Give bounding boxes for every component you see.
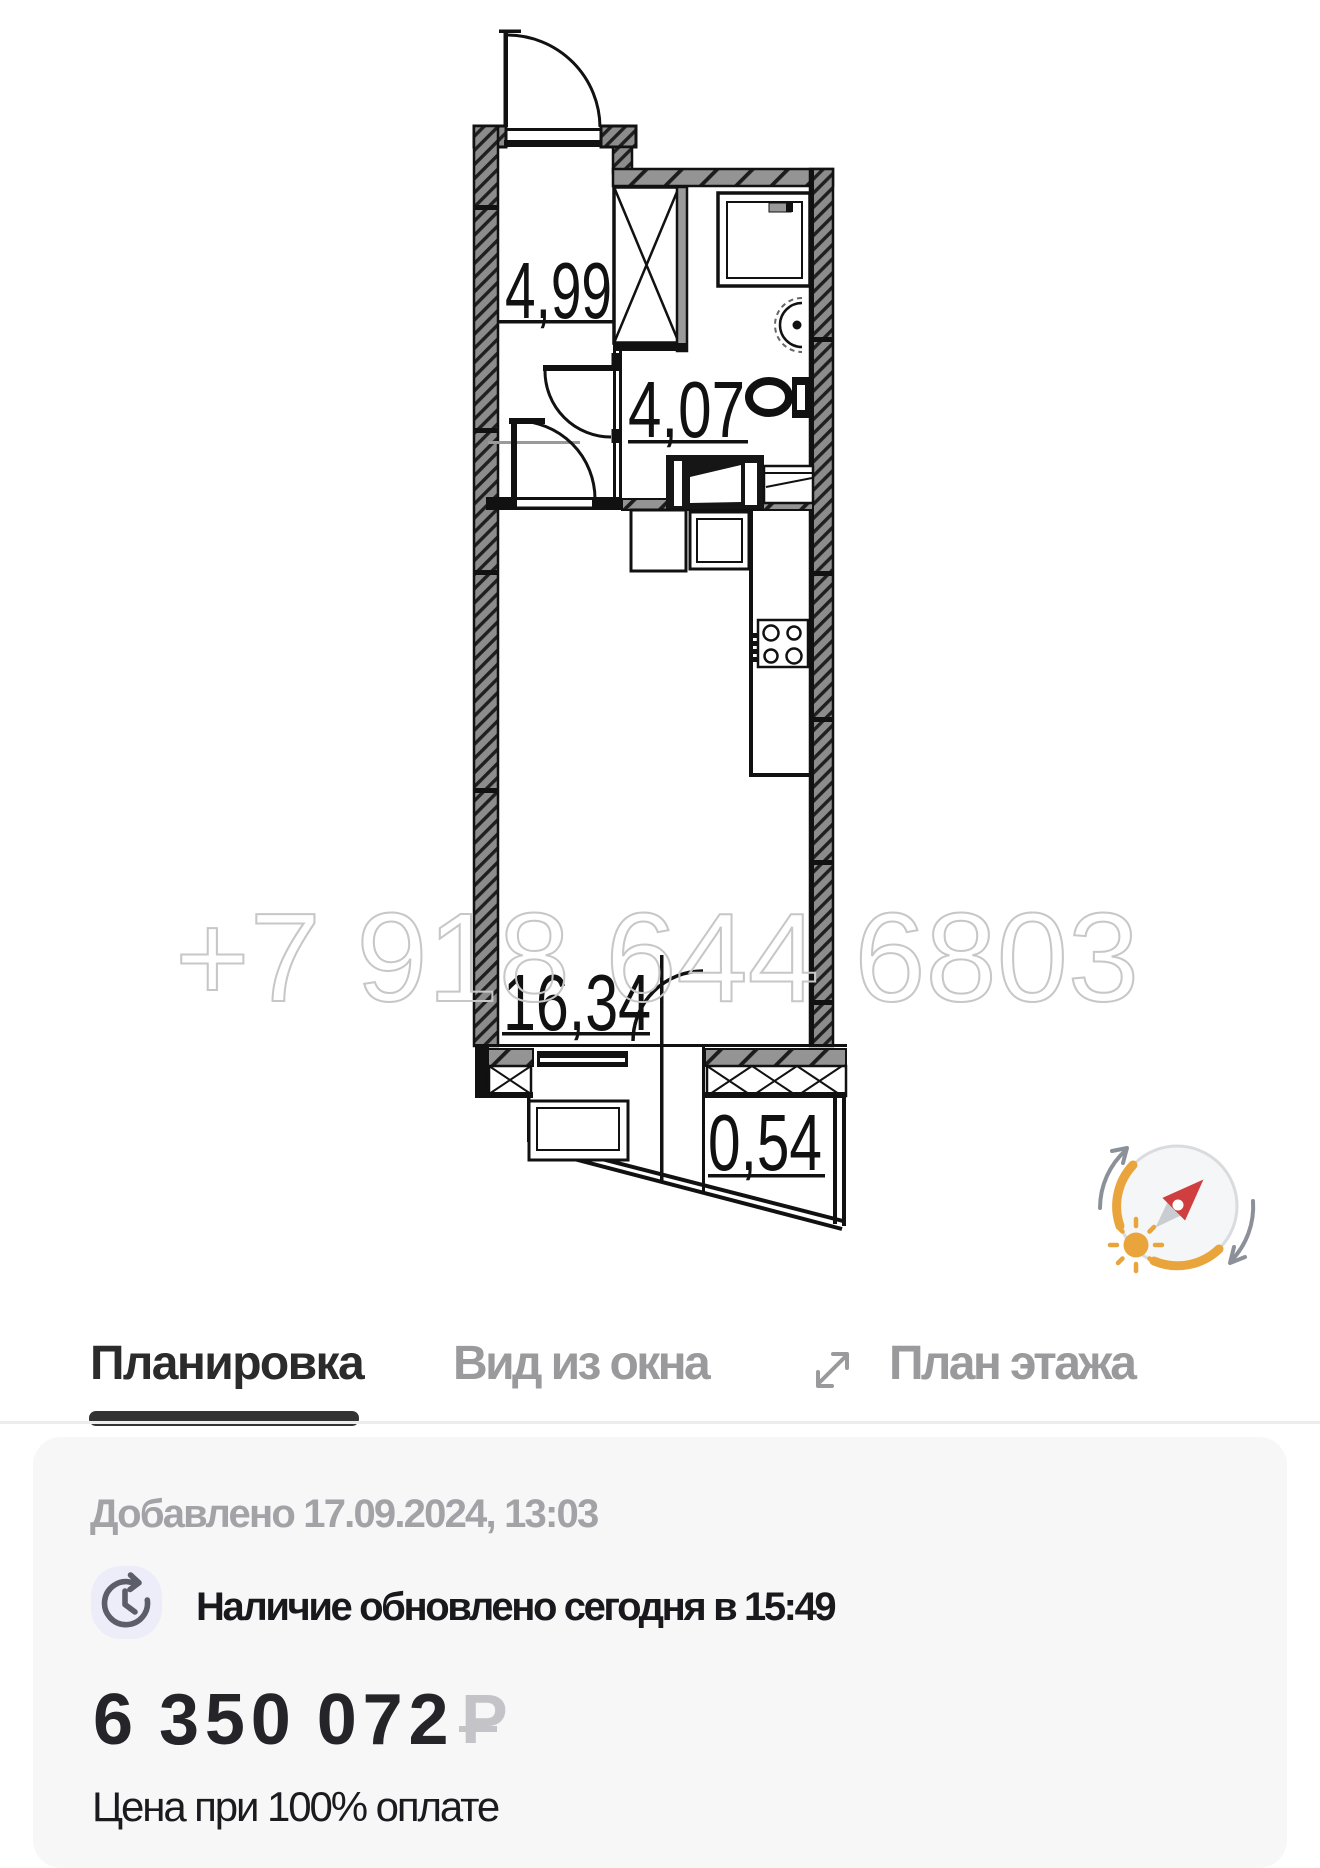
svg-text:+7 918 644 6803: +7 918 644 6803 <box>175 887 1139 1028</box>
svg-text:0,54: 0,54 <box>708 1098 822 1187</box>
